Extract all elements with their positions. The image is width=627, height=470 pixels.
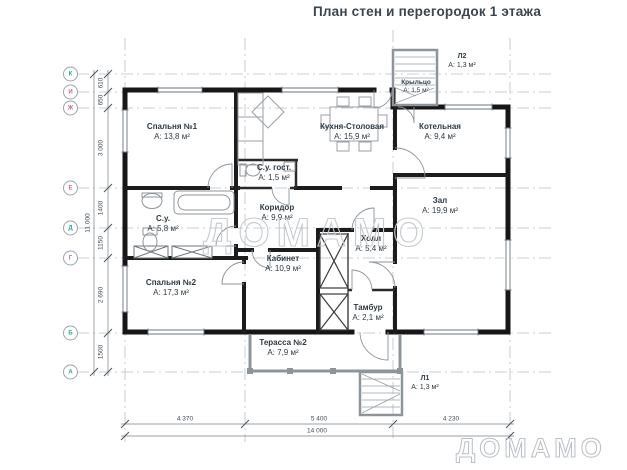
room-area: А: 9,9 м² [260,213,294,223]
room-label-hall: Холл А: 5,4 м² [355,234,386,255]
grid-axis-bubble: Ж [63,101,78,116]
room-area: А: 1,3 м² [411,383,438,392]
room-name: Спальня №2 [146,278,196,288]
room-name: Коридор [260,203,294,213]
room-label-tambour: Тамбур А: 2,1 м² [352,303,383,324]
room-area: А: 1,5 м² [257,173,291,183]
grid-axis-letter: Б [68,330,72,336]
dim-left-total: 11 000 [85,213,92,232]
room-area: А: 19,9 м² [422,206,458,216]
grid-axis-letter: К [69,71,73,77]
staircase-l2 [393,50,437,105]
room-name: Спальня №1 [147,122,197,132]
dim-bottom-4370: 4 370 [177,416,193,423]
grid-axis-bubble: Д [63,221,78,236]
dim-left-1400: 1400 [98,201,105,215]
room-name: Крыльцо [401,79,431,87]
dim-bottom-4230: 4 230 [443,416,459,423]
grid-axis-letter: Ж [68,105,73,111]
room-label-terrace: Терасса №2 А: 7,9 м² [259,338,306,359]
room-label-bedroom2: Спальня №2 А: 17,3 м² [146,278,196,299]
room-area: А: 2,1 м² [352,313,383,323]
dim-left-610: 610 [98,78,105,89]
dim-left-1150: 1150 [98,236,105,250]
grid-axis-bubble: Г [63,251,78,266]
floor-plan-page: План стен и перегородок 1 этажа [0,0,627,470]
grid-axis-bubble: Е [63,181,78,196]
room-area: А: 17,3 м² [146,288,196,298]
dim-left-3000: 3 000 [98,140,105,156]
room-area: А: 1,3 м² [448,61,475,70]
room-label-wc: С.у. А: 5,8 м² [147,214,178,235]
grid-axis-letter: Е [68,185,72,191]
room-name: Л2 [448,52,475,61]
dim-left-1500: 1500 [98,345,105,359]
room-name: Зал [422,196,458,206]
room-area: А: 13,8 м² [147,132,197,142]
dim-left-2690: 2 690 [98,287,105,303]
dim-bottom-total: 14 000 [307,428,327,435]
room-name: С.у. гост. [257,163,291,173]
room-area: А: 7,9 м² [259,348,306,358]
grid-axis-letter: И [68,89,72,95]
dim-bottom-5400: 5 400 [311,416,327,423]
staircase-l1 [360,372,402,415]
room-label-living: Зал А: 19,9 м² [422,196,458,217]
room-name: Тамбур [352,303,383,313]
floor-plan-drawing [0,0,627,470]
grid-axis-bubble: К [63,67,78,82]
staircase-hall [320,234,348,330]
room-label-cabinet: Кабинет А: 10,9 м² [265,254,301,275]
room-name: Котельная [419,122,461,132]
room-label-bedroom1: Спальня №1 А: 13,8 м² [147,122,197,143]
room-name: Холл [355,234,386,244]
grid-axis-bubble: Б [63,326,78,341]
grid-axis-bubble: И [63,85,78,100]
room-area: А: 15,9 м² [320,132,384,142]
room-area: А: 9,4 м² [419,132,461,142]
grid-axis-bubble: А [63,365,78,380]
grid-axis-letter: А [68,369,72,375]
grid-axis-letter: Д [68,225,72,231]
room-name: Л1 [411,374,438,383]
room-name: С.у. [147,214,178,224]
room-name: Кабинет [265,254,301,264]
room-label-porch: Крыльцо А: 1,5 м² [401,79,431,96]
room-name: Терасса №2 [259,338,306,348]
dim-left-650: 650 [98,95,105,106]
room-label-kitchen: Кухня-Столовая А: 15,9 м² [320,122,384,143]
room-area: А: 5,4 м² [355,244,386,254]
room-label-corridor: Коридор А: 9,9 м² [260,203,294,224]
grid-axis-letter: Г [69,255,72,261]
room-label-stair-l2: Л2 А: 1,3 м² [448,52,475,70]
room-label-stair-l1: Л1 А: 1,3 м² [411,374,438,392]
room-area: А: 10,9 м² [265,264,301,274]
room-label-guest-wc: С.у. гост. А: 1,5 м² [257,163,291,184]
room-label-boiler: Котельная А: 9,4 м² [419,122,461,143]
room-name: Кухня-Столовая [320,122,384,132]
wardrobes [134,246,212,258]
room-area: А: 1,5 м² [401,87,431,95]
room-area: А: 5,8 м² [147,224,178,234]
